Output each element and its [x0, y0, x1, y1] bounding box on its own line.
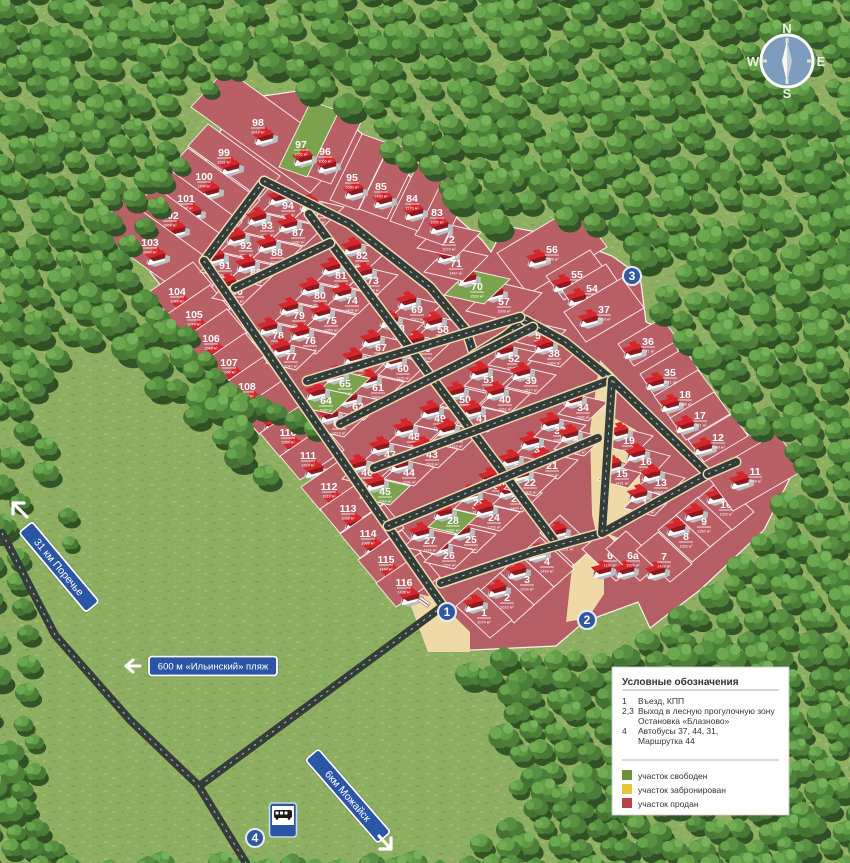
- svg-text:4: 4: [544, 556, 550, 568]
- svg-text:50: 50: [459, 394, 471, 406]
- svg-text:1406 м²: 1406 м²: [345, 309, 359, 313]
- svg-text:25: 25: [465, 534, 477, 546]
- svg-text:36: 36: [642, 336, 654, 348]
- svg-text:93: 93: [261, 220, 273, 232]
- svg-text:85: 85: [375, 181, 387, 193]
- svg-text:1249 м²: 1249 м²: [446, 529, 460, 533]
- svg-text:115: 115: [378, 554, 395, 566]
- svg-text:65: 65: [339, 378, 351, 390]
- svg-text:56: 56: [546, 244, 558, 256]
- svg-text:75: 75: [325, 315, 337, 327]
- svg-text:1524 м²: 1524 м²: [626, 564, 640, 568]
- svg-text:1588 м²: 1588 м²: [576, 416, 590, 420]
- svg-text:1666 м²: 1666 м²: [163, 224, 177, 228]
- svg-text:69: 69: [411, 304, 423, 316]
- svg-text:1444 м²: 1444 м²: [379, 568, 393, 572]
- svg-text:83: 83: [431, 207, 443, 219]
- svg-text:1294 м²: 1294 м²: [520, 588, 534, 592]
- svg-text:1049 м²: 1049 м²: [170, 300, 184, 304]
- svg-text:1120 м²: 1120 м²: [396, 377, 410, 381]
- svg-text:106: 106: [202, 333, 220, 345]
- svg-text:1038 м²: 1038 м²: [341, 517, 355, 521]
- svg-text:Остановка «Блазново»: Остановка «Блазново»: [638, 716, 730, 726]
- svg-text:2642 м²: 2642 м²: [143, 251, 157, 255]
- svg-text:3: 3: [524, 574, 530, 586]
- svg-text:28: 28: [447, 515, 459, 527]
- svg-text:101: 101: [177, 193, 195, 205]
- svg-text:26: 26: [443, 550, 455, 562]
- svg-text:Автобусы 37, 44, 31,: Автобусы 37, 44, 31,: [638, 726, 718, 736]
- svg-text:87: 87: [292, 227, 304, 239]
- svg-text:12: 12: [712, 432, 724, 444]
- svg-text:1331 м²: 1331 м²: [217, 161, 231, 165]
- svg-text:1074 м²: 1074 м²: [187, 323, 201, 327]
- svg-text:3019 м²: 3019 м²: [251, 131, 265, 135]
- svg-text:61: 61: [372, 382, 384, 394]
- svg-text:участок продан: участок продан: [638, 799, 699, 809]
- svg-text:1047 м²: 1047 м²: [284, 365, 298, 369]
- svg-text:Въезд, КПП: Въезд, КПП: [638, 696, 684, 706]
- svg-text:1459 м²: 1459 м²: [540, 570, 554, 574]
- svg-text:8708 м²: 8708 м²: [748, 480, 762, 484]
- svg-text:N: N: [782, 21, 791, 36]
- svg-text:97: 97: [295, 139, 307, 151]
- svg-text:74: 74: [346, 295, 358, 307]
- svg-text:1593 м²: 1593 м²: [470, 295, 484, 299]
- svg-text:Маршрутка 44: Маршрутка 44: [638, 736, 695, 746]
- svg-text:1088 м²: 1088 м²: [361, 542, 375, 546]
- svg-text:1120 м²: 1120 м²: [603, 564, 617, 568]
- svg-text:48: 48: [408, 431, 420, 443]
- svg-text:6a: 6a: [627, 550, 639, 562]
- svg-text:1623 м²: 1623 м²: [500, 606, 514, 610]
- svg-text:15: 15: [616, 468, 628, 480]
- svg-text:1: 1: [444, 605, 451, 619]
- svg-text:45: 45: [379, 486, 391, 498]
- svg-text:77: 77: [285, 351, 297, 363]
- svg-text:4: 4: [252, 831, 259, 845]
- svg-text:1431 м²: 1431 м²: [615, 482, 629, 486]
- svg-text:70: 70: [471, 281, 483, 293]
- svg-text:112: 112: [321, 481, 338, 493]
- svg-text:1428 м²: 1428 м²: [657, 565, 671, 569]
- svg-text:24: 24: [488, 512, 500, 524]
- svg-text:1066 м²: 1066 м²: [318, 160, 332, 164]
- svg-text:1544 м²: 1544 м²: [378, 500, 392, 504]
- svg-text:1428 м²: 1428 м²: [397, 591, 411, 595]
- svg-text:4: 4: [622, 726, 627, 736]
- svg-text:1: 1: [622, 696, 627, 706]
- svg-text:600 м «Ильинский» пляж: 600 м «Ильинский» пляж: [158, 661, 269, 672]
- svg-text:1064 м²: 1064 м²: [547, 362, 561, 366]
- svg-text:участок забронирован: участок забронирован: [638, 785, 726, 795]
- svg-text:1062 м²: 1062 м²: [294, 153, 308, 157]
- svg-text:18: 18: [679, 389, 691, 401]
- svg-text:107: 107: [220, 357, 238, 369]
- svg-text:1348 м²: 1348 м²: [711, 446, 725, 450]
- svg-text:1696 м²: 1696 м²: [402, 481, 416, 485]
- svg-text:1548 м²: 1548 м²: [204, 347, 218, 351]
- svg-text:1508 м²: 1508 м²: [497, 310, 511, 314]
- svg-text:1155 м²: 1155 м²: [719, 513, 733, 517]
- svg-text:1254 м²: 1254 м²: [442, 564, 456, 568]
- svg-text:1168 м²: 1168 м²: [679, 545, 693, 549]
- svg-text:1184 м²: 1184 м²: [423, 549, 437, 553]
- svg-text:91: 91: [219, 260, 231, 272]
- svg-text:E: E: [817, 54, 826, 69]
- svg-text:2: 2: [584, 613, 591, 627]
- svg-text:S: S: [783, 86, 792, 101]
- svg-text:1467 м²: 1467 м²: [449, 272, 463, 276]
- svg-text:2268 м²: 2268 м²: [545, 258, 559, 262]
- svg-text:2,3: 2,3: [622, 706, 634, 716]
- svg-text:52: 52: [508, 353, 520, 365]
- svg-text:7: 7: [661, 551, 667, 563]
- svg-text:2: 2: [504, 592, 510, 604]
- svg-text:1095 м²: 1095 м²: [430, 221, 444, 225]
- svg-text:1350 м²: 1350 м²: [697, 530, 711, 534]
- svg-text:99: 99: [218, 147, 230, 159]
- svg-text:57: 57: [498, 296, 510, 308]
- svg-text:3: 3: [629, 269, 636, 283]
- svg-text:Условные обозначения: Условные обозначения: [622, 676, 739, 688]
- svg-text:38: 38: [548, 348, 560, 360]
- svg-text:1070 м²: 1070 м²: [442, 248, 456, 252]
- svg-text:13: 13: [655, 477, 667, 489]
- svg-text:Выход в лесную прогулочную зон: Выход в лесную прогулочную зону: [638, 706, 775, 716]
- svg-text:80: 80: [314, 290, 326, 302]
- svg-text:1185 м²: 1185 м²: [319, 409, 333, 413]
- svg-text:76: 76: [304, 335, 316, 347]
- svg-text:1276 м²: 1276 м²: [405, 207, 419, 211]
- svg-text:1219 м²: 1219 м²: [322, 495, 336, 499]
- svg-text:17: 17: [694, 410, 706, 422]
- svg-text:9: 9: [701, 516, 707, 528]
- svg-text:94: 94: [282, 200, 294, 212]
- svg-text:1573 м²: 1573 м²: [332, 432, 346, 436]
- svg-text:1321 м²: 1321 м²: [693, 424, 707, 428]
- svg-text:27: 27: [424, 535, 436, 547]
- svg-text:111: 111: [300, 450, 317, 462]
- svg-text:71: 71: [450, 258, 462, 270]
- svg-text:1577 м²: 1577 м²: [524, 389, 538, 393]
- svg-text:22: 22: [524, 477, 536, 489]
- svg-text:79: 79: [293, 310, 305, 322]
- svg-text:34: 34: [577, 402, 589, 414]
- svg-text:114: 114: [360, 528, 377, 540]
- svg-text:35: 35: [664, 367, 676, 379]
- svg-text:81: 81: [335, 270, 347, 282]
- svg-text:39: 39: [525, 375, 537, 387]
- svg-text:64: 64: [320, 395, 332, 407]
- svg-text:116: 116: [396, 577, 413, 589]
- svg-text:участок свободен: участок свободен: [638, 771, 708, 781]
- svg-text:44: 44: [403, 467, 415, 479]
- svg-text:40: 40: [499, 394, 511, 406]
- svg-text:2771 м²: 2771 м²: [641, 350, 655, 354]
- svg-text:88: 88: [271, 247, 283, 259]
- svg-text:1050 м²: 1050 м²: [324, 329, 338, 333]
- svg-text:37: 37: [598, 304, 610, 316]
- svg-text:1074 м²: 1074 м²: [477, 621, 491, 625]
- svg-text:104: 104: [168, 286, 186, 298]
- svg-text:1680 м²: 1680 м²: [345, 186, 359, 190]
- svg-text:98: 98: [252, 117, 264, 129]
- svg-text:11: 11: [749, 466, 760, 478]
- svg-text:1154 м²: 1154 м²: [197, 185, 211, 189]
- svg-text:113: 113: [340, 503, 357, 515]
- svg-text:1370 м²: 1370 м²: [487, 526, 501, 530]
- svg-text:92: 92: [240, 240, 252, 252]
- svg-text:2918 м²: 2918 м²: [597, 318, 611, 322]
- svg-text:1485 м²: 1485 м²: [374, 195, 388, 199]
- svg-text:1519 м²: 1519 м²: [301, 464, 315, 468]
- svg-text:84: 84: [406, 193, 418, 205]
- svg-text:95: 95: [346, 172, 358, 184]
- svg-text:1059 м²: 1059 м²: [281, 441, 295, 445]
- svg-text:82: 82: [356, 250, 368, 262]
- svg-text:1: 1: [481, 607, 487, 619]
- svg-text:105: 105: [185, 309, 203, 321]
- svg-text:60: 60: [397, 363, 409, 375]
- svg-text:1060 м²: 1060 м²: [291, 241, 305, 245]
- svg-text:100: 100: [195, 171, 213, 183]
- svg-text:W: W: [747, 54, 760, 69]
- svg-text:8: 8: [683, 531, 689, 543]
